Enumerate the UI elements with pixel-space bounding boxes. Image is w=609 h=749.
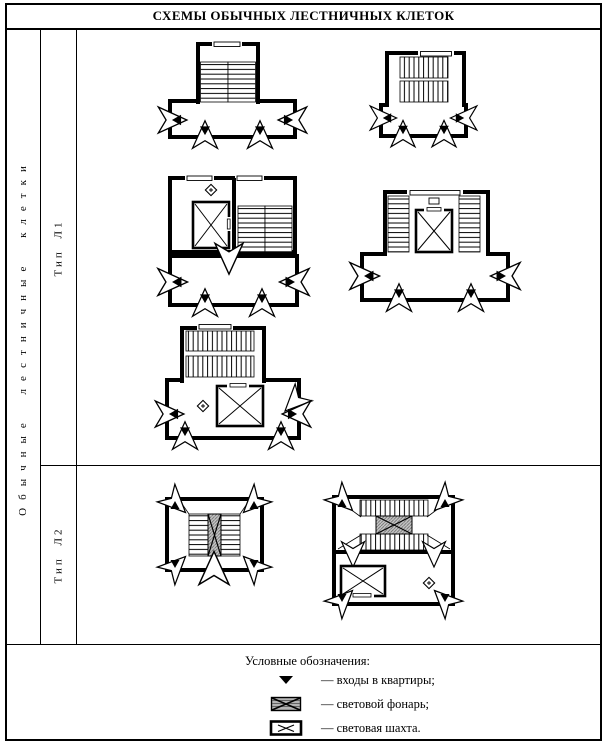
legend-item-light-shaft: — световая шахта. [257,718,421,738]
floor-plan-l2-1 [157,484,272,585]
floor-plan-l2-2 [324,482,463,619]
legend-item-label: — световой фонарь; [321,697,429,712]
legend-item-label: — входы в квартиры; [321,673,435,688]
skylight-lantern-icon [257,696,315,712]
legend-heading: Условные обозначения: [245,654,370,669]
type-l1-label: Тип Л1 [53,219,65,276]
floor-plans-canvas [77,30,602,644]
row-group-cell: Обычные лестничные клетки [5,30,41,644]
legend-item-label: — световая шахта. [321,721,421,736]
floor-plan-l1-3 [158,174,309,317]
type-l1-cell: Тип Л1 [41,30,77,465]
light-shaft-icon [257,719,315,737]
row-group-label: Обычные лестничные клетки [17,158,29,516]
legend-item-skylight: — световой фонарь; [257,694,429,714]
type-l2-cell: Тип Л2 [41,465,77,644]
page-title: СХЕМЫ ОБЫЧНЫХ ЛЕСТНИЧНЫХ КЛЕТОК [153,8,455,24]
title-bar: СХЕМЫ ОБЫЧНЫХ ЛЕСТНИЧНЫХ КЛЕТОК [5,3,602,30]
floor-plan-l1-5 [155,322,312,449]
type-l2-label: Тип Л2 [53,526,65,583]
floor-plan-l1-2 [370,49,477,147]
entrance-arrow-icon [257,675,315,685]
legend-item-entrances: — входы в квартиры; [257,670,435,690]
plans-area [77,30,602,644]
document-page: СХЕМЫ ОБЫЧНЫХ ЛЕСТНИЧНЫХ КЛЕТОК Обычные … [0,0,609,749]
floor-plan-l1-1 [158,40,306,148]
legend-section: Условные обозначения: — входы в квартиры… [5,644,602,739]
floor-plan-l1-4 [350,188,520,311]
